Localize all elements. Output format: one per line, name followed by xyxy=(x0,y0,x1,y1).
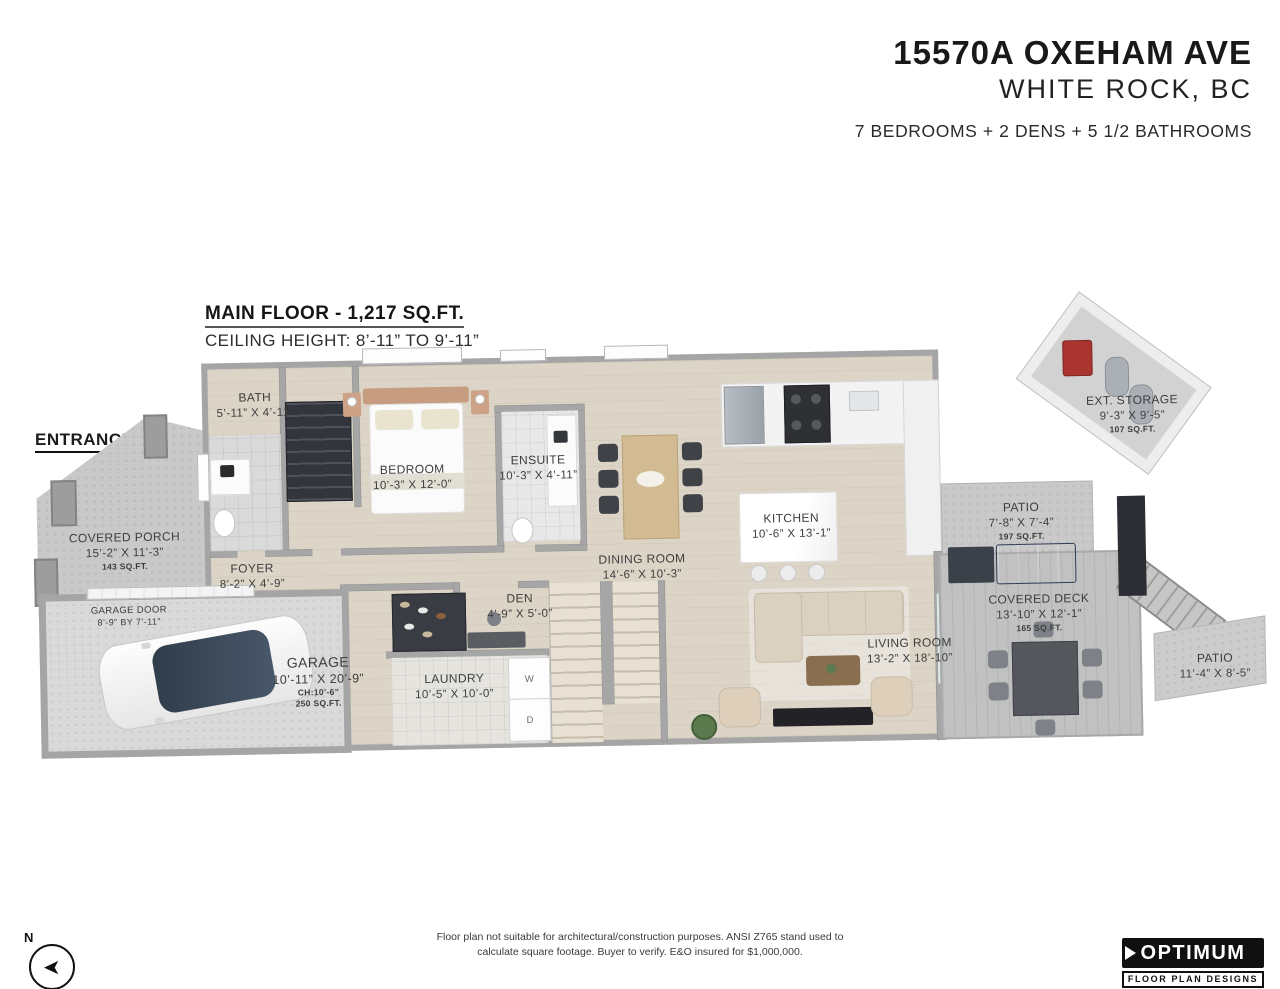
den-label: DEN 4’-9” X 5’-0” xyxy=(487,591,553,623)
fridge xyxy=(724,386,765,445)
burner xyxy=(811,420,821,430)
washer-label: W xyxy=(525,674,534,685)
dryer-label: D xyxy=(527,715,534,726)
floor-plan-page: 15570A OXEHAM AVE WHITE ROCK, BC 7 BEDRO… xyxy=(0,0,1280,989)
bedroom-label: BEDROOM 10’-3” X 12’-0” xyxy=(373,462,452,494)
armchair xyxy=(870,676,913,717)
laundry-label: LAUNDRY 10’-5” X 10’-0” xyxy=(415,671,494,703)
dining-chair xyxy=(682,442,702,460)
sofa-chaise xyxy=(754,592,803,663)
wall xyxy=(536,544,587,551)
dining-chair xyxy=(682,468,702,486)
logo-arrow-icon xyxy=(1125,946,1136,960)
porch-pillar xyxy=(50,480,77,526)
lower-patio-label: PATIO 11’-4” X 8’-5” xyxy=(1179,650,1251,682)
outdoor-chair xyxy=(1082,648,1102,666)
logo: OPTIMUM FLOOR PLAN DESIGNS xyxy=(1122,938,1264,988)
kitchen-label: KITCHEN 10’-6” X 13’-1” xyxy=(752,510,831,542)
disclaimer-line2: calculate square footage. Buyer to verif… xyxy=(0,945,1280,960)
kitchen-sink xyxy=(849,391,879,412)
outdoor-chair xyxy=(1035,719,1055,735)
stairs xyxy=(612,581,662,704)
dining-chair xyxy=(598,470,618,488)
car-roof xyxy=(150,627,278,715)
bath-label: BATH 5’-11” X 4’-11” xyxy=(216,390,294,422)
stairs xyxy=(548,582,603,743)
dining-chair xyxy=(598,444,618,462)
upper-patio-label: PATIO 7’-8” X 7’-4” 197 SQ.FT. xyxy=(988,499,1054,542)
storage-gear xyxy=(1105,357,1130,397)
pillow xyxy=(421,409,459,430)
floor-plan: W D xyxy=(0,0,1280,989)
garage-door-label: GARAGE DOOR 8’-9” BY 7’-11” xyxy=(91,604,168,629)
armchair xyxy=(718,687,761,728)
dining-chair xyxy=(599,496,619,514)
logo-subtitle: FLOOR PLAN DESIGNS xyxy=(1122,971,1264,988)
stove xyxy=(784,385,831,444)
covered-deck-label: COVERED DECK 13’-10” X 12’-1” 165 SQ.FT. xyxy=(988,591,1090,635)
disclaimer-line1: Floor plan not suitable for architectura… xyxy=(0,930,1280,945)
outdoor-chair xyxy=(988,682,1008,700)
car-mirror xyxy=(141,642,151,649)
pillow xyxy=(375,410,413,431)
pantry xyxy=(903,379,942,556)
tv-console xyxy=(773,707,873,727)
bath-accessory xyxy=(220,465,234,477)
disclaimer: Floor plan not suitable for architectura… xyxy=(0,930,1280,960)
covered-porch-label: COVERED PORCH 15’-2” X 11’-3” 143 SQ.FT. xyxy=(69,529,181,573)
living-room-label: LIVING ROOM 13’-2” X 18’-10” xyxy=(867,635,953,667)
outdoor-chair xyxy=(1082,680,1102,698)
ext-storage-label: EXT. STORAGE 9’-3” X 9’-5” 107 SQ.FT. xyxy=(1086,392,1179,435)
planter xyxy=(948,546,995,583)
garage-label: GARAGE 10’-11” X 20’-9” CH:10’-6” 250 SQ… xyxy=(272,652,365,710)
lawnmower xyxy=(1062,340,1093,377)
porch-pillar xyxy=(143,414,168,458)
foyer-label: FOYER 8’-2” X 4’-9” xyxy=(219,561,285,593)
ensuite-label: ENSUITE 10’-3” X 4’-11” xyxy=(499,452,578,484)
ensuite-sink xyxy=(554,431,568,443)
wall xyxy=(211,551,237,557)
dining-room-label: DINING ROOM 14’-6” X 10’-3” xyxy=(598,551,686,583)
bbq-grill xyxy=(996,543,1077,585)
window xyxy=(604,345,668,360)
window xyxy=(362,347,462,365)
chimney xyxy=(1117,496,1147,597)
window xyxy=(500,349,546,362)
dining-chair xyxy=(683,494,703,512)
outdoor-chair xyxy=(988,650,1008,668)
window xyxy=(197,453,210,501)
storage-shed xyxy=(1017,293,1210,474)
logo-title: OPTIMUM xyxy=(1122,938,1264,968)
wall xyxy=(518,581,548,588)
den-desk xyxy=(467,631,525,648)
wall xyxy=(266,550,312,557)
outdoor-table xyxy=(1012,641,1079,716)
car-mirror xyxy=(154,717,164,724)
